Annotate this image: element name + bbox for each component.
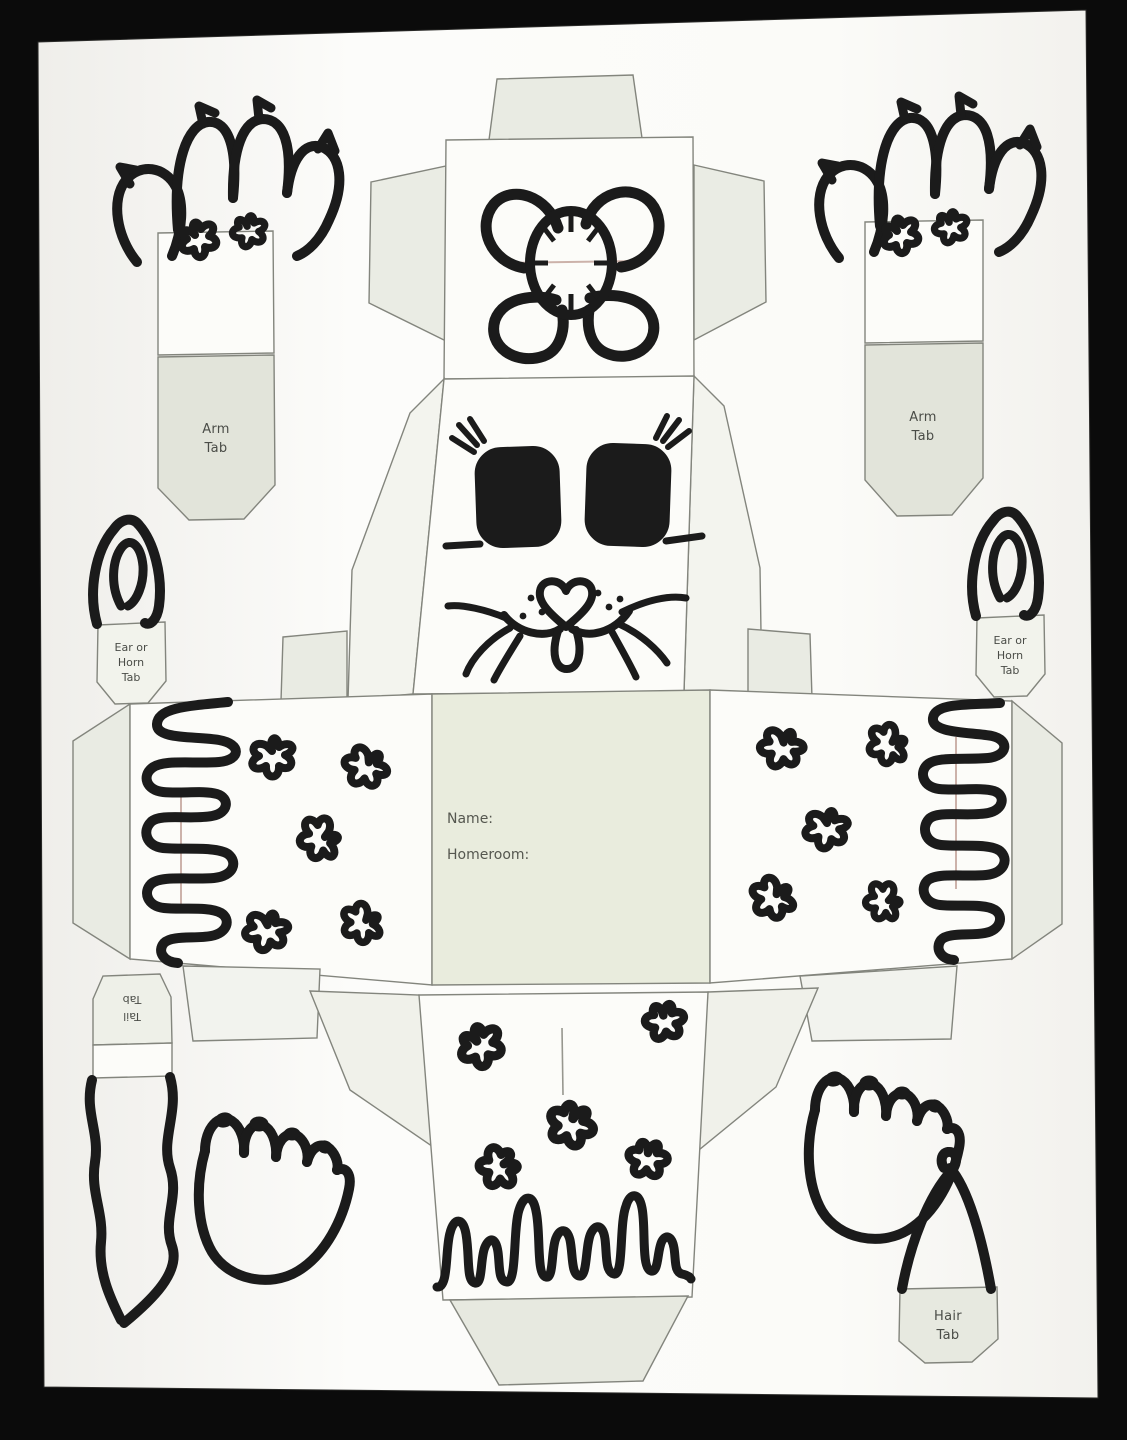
left-under-eye-line xyxy=(446,544,480,546)
left-arm-tab-label-line2: Tab xyxy=(204,441,228,456)
band-right-top-tab xyxy=(748,629,812,698)
left-arm-tab-label-line1: Arm xyxy=(202,422,230,437)
right-ear-tab-label-line2: Horn xyxy=(997,649,1023,662)
band-right-end-flap xyxy=(1012,701,1062,959)
right-arm-tab-label-line2: Tab xyxy=(911,429,935,444)
right-arm-tab-label-line1: Arm xyxy=(909,410,937,425)
homeroom-field-label: Homeroom: xyxy=(447,847,529,863)
tail-tab xyxy=(93,974,172,1045)
hair-tab xyxy=(899,1287,998,1363)
tail-tab-label-line1: Tail xyxy=(123,1010,142,1023)
left-ear-tab-label-line1: Ear or xyxy=(115,641,148,654)
band-left-top-tab xyxy=(281,631,347,701)
hair-tab-label-line1: Hair xyxy=(934,1309,962,1324)
head-top-glue-tab xyxy=(489,75,642,140)
band-left-bottom-tab xyxy=(183,966,320,1041)
photo-of-papercraft-template: Arm Tab Arm Tab Ear or Horn Tab Ear or H… xyxy=(0,0,1127,1440)
bottom-panel-fold-line xyxy=(562,1028,563,1095)
tail-rect xyxy=(93,1043,172,1078)
band-center-panel xyxy=(432,690,710,985)
left-eye xyxy=(474,446,561,549)
head-top-panel xyxy=(444,137,694,379)
tail-tab-label-line2: Tab xyxy=(123,993,143,1006)
hair-tab-label-line2: Tab xyxy=(936,1328,960,1343)
left-ear-tab-label-line2: Horn xyxy=(118,656,144,669)
right-ear-tab-label-line1: Ear or xyxy=(994,634,1027,647)
right-eye xyxy=(584,443,672,548)
right-under-eye-line xyxy=(666,536,702,541)
name-field-label: Name: xyxy=(447,811,493,827)
band-right-bottom-tab xyxy=(800,966,957,1041)
left-arm-tab xyxy=(158,355,275,520)
left-ear-tab-label-line3: Tab xyxy=(121,671,141,684)
papercraft-photo-canvas: Arm Tab Arm Tab Ear or Horn Tab Ear or H… xyxy=(0,0,1127,1440)
band-left-end-flap xyxy=(73,704,130,959)
right-ear-tab-label-line3: Tab xyxy=(1000,664,1020,677)
